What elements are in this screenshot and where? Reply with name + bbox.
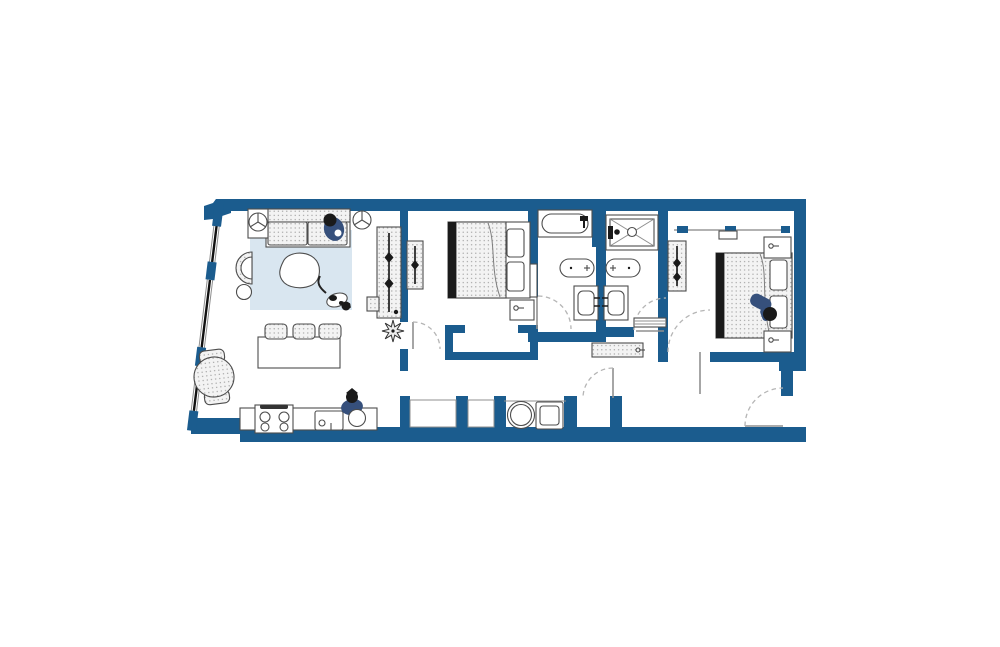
- bathroom-door-recess: [530, 264, 537, 297]
- washer: [508, 402, 535, 429]
- shower: [606, 215, 658, 250]
- nightstand-bedroom-1: [510, 300, 534, 320]
- floor-plan-drawing: [0, 0, 1000, 647]
- hall-bench: [592, 343, 645, 357]
- vanity-sink-2: [602, 286, 628, 320]
- toilet-1: [560, 259, 594, 277]
- toilet-2: [606, 259, 640, 277]
- kitchen-sink: [315, 411, 343, 430]
- clothes-rack-large: [367, 227, 401, 318]
- bar-stools: [265, 324, 341, 339]
- towel-shelf: [634, 318, 666, 327]
- floor-lamp-right: [353, 211, 371, 229]
- bar-stool: [293, 324, 315, 339]
- clothes-rack-small: [407, 241, 423, 289]
- side-table: [237, 285, 252, 300]
- nightstand-bedroom-2-top: [764, 237, 791, 258]
- bed-1: [448, 222, 530, 298]
- bathtub: [538, 210, 592, 237]
- nightstand-bedroom-2-bottom: [764, 331, 791, 352]
- armchair: [236, 252, 252, 284]
- kitchen-island: [258, 337, 340, 368]
- wardrobe-bedroom-2: [668, 241, 686, 291]
- vanity-sink-1: [574, 286, 600, 320]
- entry-door: [745, 388, 783, 426]
- bar-stool: [319, 324, 341, 339]
- closet-bedroom-1: [445, 325, 538, 360]
- floor-lamp-left: [248, 209, 268, 238]
- dryer: [536, 402, 563, 429]
- stove: [255, 405, 293, 434]
- bar-stool: [265, 324, 287, 339]
- coffee-table: [280, 253, 320, 288]
- floor-plan-canvas: [0, 0, 1000, 647]
- potted-plant: [382, 320, 404, 342]
